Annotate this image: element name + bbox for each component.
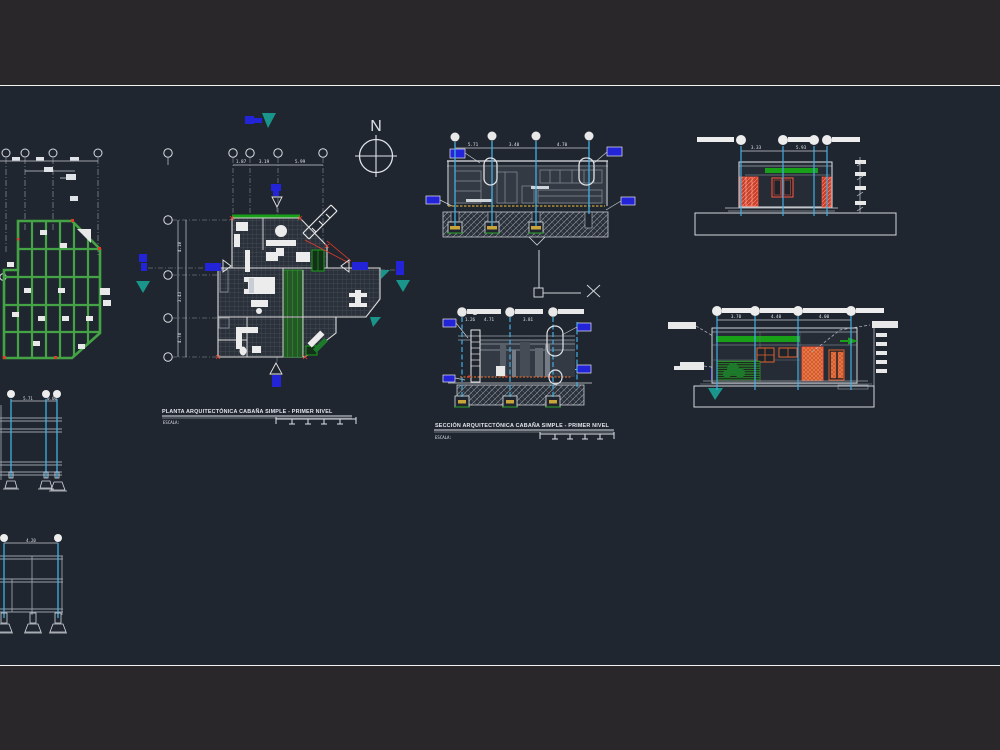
- dim-text: 4.71: [484, 317, 495, 322]
- dim-text: 3.33: [751, 145, 762, 151]
- cad-sheet: 1.87 3.19 5.99 4.10 3.43 4.78: [0, 0, 1000, 750]
- plan-scale-label: ESCALA:: [163, 420, 180, 425]
- dim-text: 4.78: [177, 332, 183, 343]
- elev1-green-stripe: [765, 168, 818, 173]
- dim-text: 1.87: [236, 159, 247, 165]
- elev2-callout-right: [872, 321, 898, 328]
- view-frame-elevation-1: 5.71 0.60: [0, 390, 67, 491]
- elev1-grid-markers: [697, 135, 860, 145]
- dim-text: 5.71: [468, 142, 479, 148]
- marker-top-left: [245, 113, 276, 128]
- frame1-beams: [0, 405, 62, 480]
- section-title-block: SECCIÓN ARQUITECTÓNICA CABAÑA SIMPLE - P…: [434, 421, 614, 440]
- elev2-green-stripe: [716, 336, 800, 342]
- dim-text: 3.40: [509, 142, 520, 148]
- section-interior-fill: [449, 167, 606, 204]
- corner-detail: [77, 229, 91, 243]
- dim-text: 4.00: [819, 314, 830, 320]
- plan-title: PLANTA ARQUITECTÓNICA CABAÑA SIMPLE - PR…: [162, 407, 333, 415]
- ground-hatch: [457, 385, 584, 405]
- dim-text: 3.81: [523, 317, 534, 322]
- dim-text: 3.43: [177, 291, 183, 302]
- section-scale-bar: [540, 432, 614, 439]
- bottom-leader-v: [529, 237, 545, 245]
- section-arrow-top: [272, 197, 282, 207]
- frame2-beams: [0, 556, 63, 615]
- section-tag-right: [352, 262, 368, 270]
- dim-text: 5.99: [295, 159, 306, 165]
- view-structural-grid-plan: [0, 149, 111, 362]
- cad-drawing: 1.87 3.19 5.99 4.10 3.43 4.78: [0, 0, 1000, 750]
- frame1-columns-cyan: [11, 399, 57, 478]
- dim-text: 4.20: [26, 538, 36, 543]
- plan-title-block: PLANTA ARQUITECTÓNICA CABAÑA SIMPLE - PR…: [162, 407, 356, 425]
- dim-text: 3.19: [259, 159, 270, 165]
- elev2-door-big: [802, 347, 823, 381]
- elev1-platform: [695, 213, 896, 235]
- section2-grid-markers: [457, 307, 584, 317]
- ground-hatch: [443, 212, 608, 237]
- teal-arrow-left: [136, 281, 150, 293]
- dimension-text-blobs: [12, 157, 79, 201]
- section-arrow-bottom: [270, 363, 282, 374]
- section-marker-top: [271, 184, 281, 196]
- dim-text: 5.93: [796, 145, 807, 151]
- elev2-lattice-planter: [717, 361, 760, 381]
- section-marker-right: [396, 261, 404, 275]
- section-marker-left: [139, 254, 147, 271]
- dim-text: 3.70: [731, 314, 742, 320]
- section-marker-bottom: [272, 375, 281, 387]
- section-tag-left: [205, 263, 221, 271]
- frame2-footings: [0, 613, 67, 633]
- view-frame-elevation-2: 4.20: [0, 534, 67, 633]
- dim-text: 5.71: [23, 396, 33, 401]
- teal-arrow-right: [396, 280, 410, 292]
- view-elevation-top-right: 3.33 5.93: [695, 135, 896, 235]
- elev1-base-steps: [725, 208, 838, 211]
- elev2-callouts-left: [668, 322, 718, 370]
- view-elevation-bottom-right: 3.70 4.40 4.00: [668, 306, 898, 407]
- section-scale-label: ESCALA:: [435, 435, 452, 440]
- section-title: SECCIÓN ARQUITECTÓNICA CABAÑA SIMPLE - P…: [435, 421, 610, 429]
- dim-text: 4.40: [771, 314, 782, 320]
- grid-axis-lines: [6, 158, 98, 256]
- view-section-bottom: 1.26 4.71 3.81: [434, 307, 614, 440]
- section-grid-bubbles: [451, 132, 594, 142]
- north-arrow: N: [355, 118, 397, 177]
- annotation-leader-x: [534, 250, 600, 297]
- dim-text: 0.60: [47, 396, 57, 401]
- view-floor-plan: 1.87 3.19 5.99 4.10 3.43 4.78: [136, 149, 410, 425]
- dim-text: 4.10: [177, 241, 183, 252]
- elev1-level-stack: [855, 157, 866, 213]
- dim-text: 4.70: [557, 142, 568, 148]
- ladder-chimney: [471, 330, 480, 382]
- north-label: N: [370, 118, 382, 135]
- elev1-red-door-left: [740, 177, 758, 206]
- dim-text: 1.26: [465, 317, 476, 322]
- deck-strip: [283, 270, 303, 357]
- view-section-top: 5.71 3.40 4.70: [426, 132, 635, 246]
- elev2-door-right: [829, 350, 844, 380]
